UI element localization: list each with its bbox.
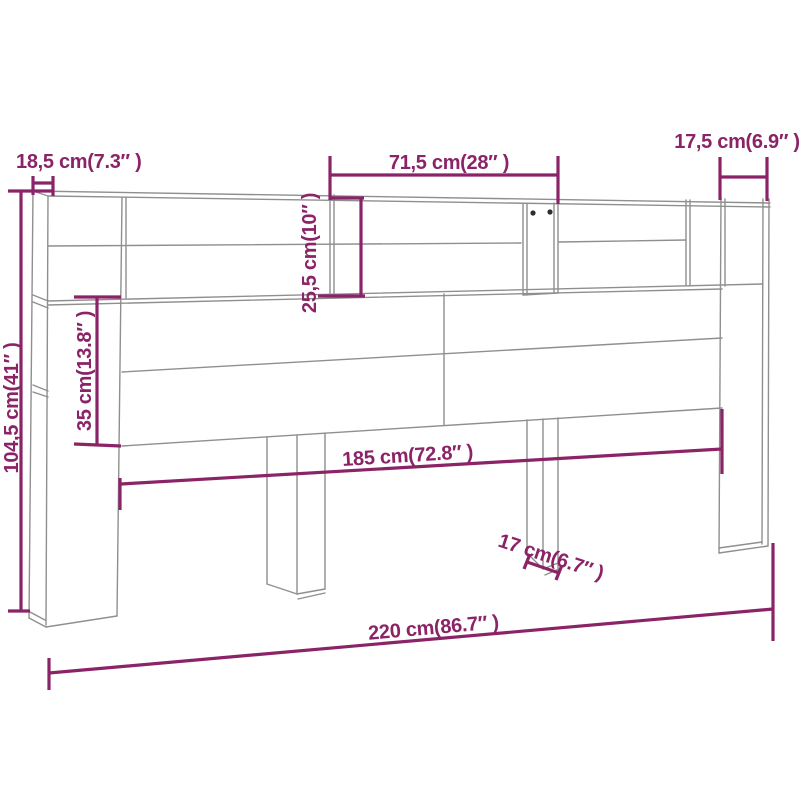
top-shelf-band: [48, 195, 763, 305]
door-knob-right: [547, 209, 552, 214]
dimension-annotations: [8, 156, 773, 690]
front-panels: [122, 294, 722, 446]
label-leg-width: 17 cm(6.7″ ): [495, 530, 606, 585]
right-side-panel: [719, 198, 769, 553]
center-left-leg: [267, 433, 325, 599]
dim-overall-width: [49, 543, 773, 690]
label-panel-height: 35 cm(13.8″ ): [74, 311, 96, 431]
door-knob-left: [530, 210, 535, 215]
label-top-shelf-width: 71,5 cm(28″ ): [389, 152, 509, 174]
dim-side-depth: [33, 176, 53, 196]
dim-top-right-compartment: [720, 157, 767, 201]
label-top-right-compartment: 17,5 cm(6.9″ ): [674, 131, 799, 153]
front-bottom-edge: [122, 408, 722, 446]
label-side-depth: 18,5 cm(7.3″ ): [16, 151, 141, 173]
headboard-diagram-canvas: 18,5 cm(7.3″ ) 71,5 cm(28″ ) 17,5 cm(6.9…: [0, 0, 800, 800]
label-shelf-height: 25,5 cm(10″ ): [299, 193, 321, 313]
top-edge: [33, 191, 770, 207]
dimension-diagram: 18,5 cm(7.3″ ) 71,5 cm(28″ ) 17,5 cm(6.9…: [0, 0, 800, 800]
dim-shelf-height: [318, 198, 365, 296]
dimension-labels: 18,5 cm(7.3″ ) 71,5 cm(28″ ) 17,5 cm(6.9…: [1, 131, 800, 645]
label-overall-height: 104,5 cm(41″ ): [1, 342, 23, 473]
label-inner-width: 185 cm(72.8″ ): [342, 441, 474, 471]
headboard-drawing: [29, 191, 770, 627]
door-panel: [523, 203, 558, 295]
panel-seam: [122, 338, 722, 372]
